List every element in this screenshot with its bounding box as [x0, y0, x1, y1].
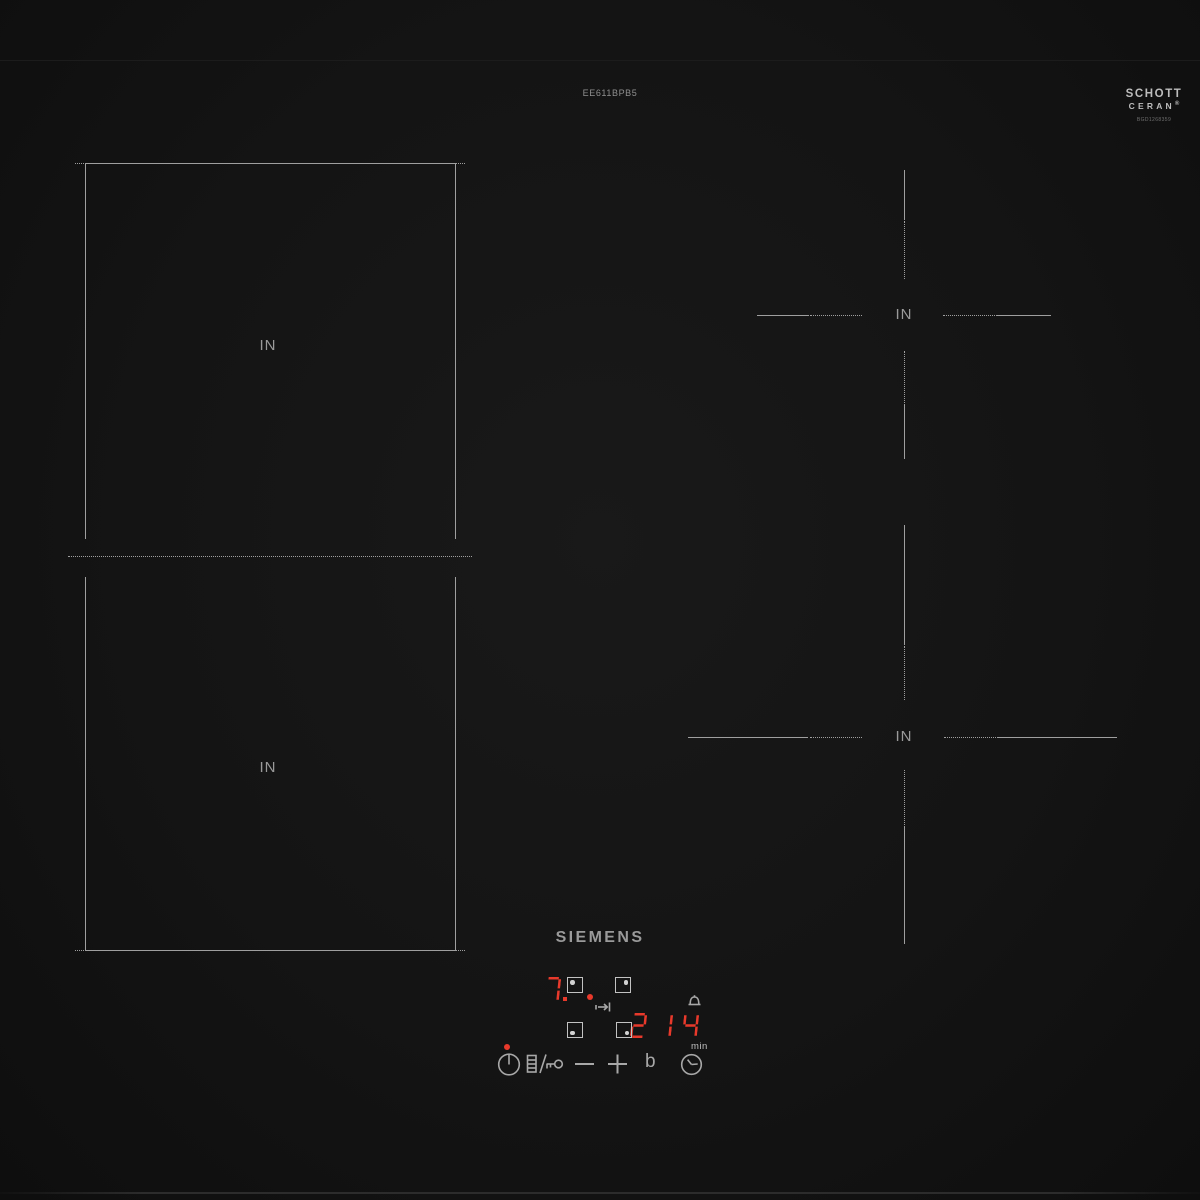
zone-position-dot [625, 1031, 630, 1036]
schott-logo-line2: CERAN® [1118, 101, 1190, 111]
wipe-protection-key-icon [528, 1055, 563, 1074]
wipe-protection-lock-button[interactable] [525, 1052, 565, 1076]
clock-icon [682, 1055, 702, 1075]
flex-corner-tick [75, 950, 84, 951]
zone-select-rear-right-button[interactable] [615, 977, 631, 993]
flex-zone-top-label: IN [240, 337, 296, 354]
model-number-label: EE611BPB5 [545, 88, 675, 98]
flex-corner-tick [456, 950, 465, 951]
timer-button[interactable] [679, 1052, 704, 1077]
glass-front-edge [0, 1192, 1200, 1194]
timer-display [657, 1013, 698, 1038]
zone-position-dot [570, 1031, 575, 1036]
booster-button[interactable]: b [645, 1051, 656, 1073]
zone-select-rear-left-button[interactable] [567, 977, 583, 993]
bell-icon [686, 992, 703, 1008]
power-indicator-dot [504, 1044, 510, 1050]
power-button[interactable] [496, 1051, 522, 1077]
front-right-zone-label: IN [876, 728, 932, 745]
rear-right-zone-label: IN [876, 306, 932, 323]
flex-zone-bottom-label: IN [240, 759, 296, 776]
flex-corner-tick [456, 163, 465, 164]
flex-corner-tick [75, 163, 84, 164]
left-zone-level-display [545, 977, 567, 1002]
siemens-logo: SIEMENS [500, 929, 700, 947]
glass-top-edge [0, 60, 1200, 61]
schott-serial-code: BGD1268359 [1118, 117, 1190, 123]
plus-button[interactable] [606, 1052, 630, 1076]
schott-ceran-logo: SCHOTT CERAN® BGD1268359 [1118, 88, 1190, 123]
induction-hob-surface: EE611BPB5 SCHOTT CERAN® BGD1268359 IN IN… [0, 0, 1200, 1200]
registered-mark: ® [1175, 101, 1179, 107]
power-icon [499, 1054, 520, 1075]
minus-button[interactable] [573, 1053, 597, 1075]
selection-indicator-dot [587, 994, 593, 1000]
plus-icon [608, 1055, 627, 1074]
right-zone-level-display [631, 1013, 646, 1038]
zone-select-front-left-button[interactable] [567, 1022, 583, 1038]
move-pot-arrow-icon [594, 1000, 612, 1014]
schott-logo-line1: SCHOTT [1118, 88, 1190, 100]
flex-zone-divider [68, 556, 472, 557]
zone-select-front-right-button[interactable] [616, 1022, 632, 1038]
zone-position-dot [624, 980, 629, 985]
timer-unit-label: min [691, 1041, 708, 1052]
zone-position-dot [570, 980, 575, 985]
